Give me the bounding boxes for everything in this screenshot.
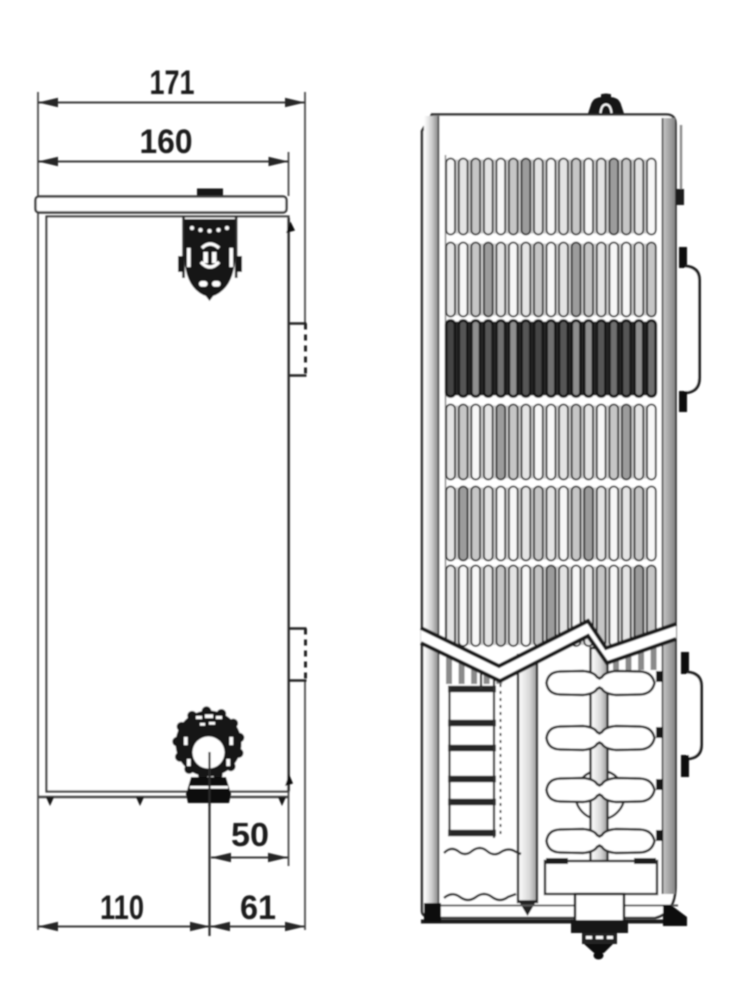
svg-text:50: 50 — [231, 816, 269, 853]
svg-text:171: 171 — [150, 64, 195, 102]
svg-text:61: 61 — [240, 889, 276, 927]
svg-text:160: 160 — [140, 123, 193, 161]
svg-text:110: 110 — [100, 889, 144, 927]
